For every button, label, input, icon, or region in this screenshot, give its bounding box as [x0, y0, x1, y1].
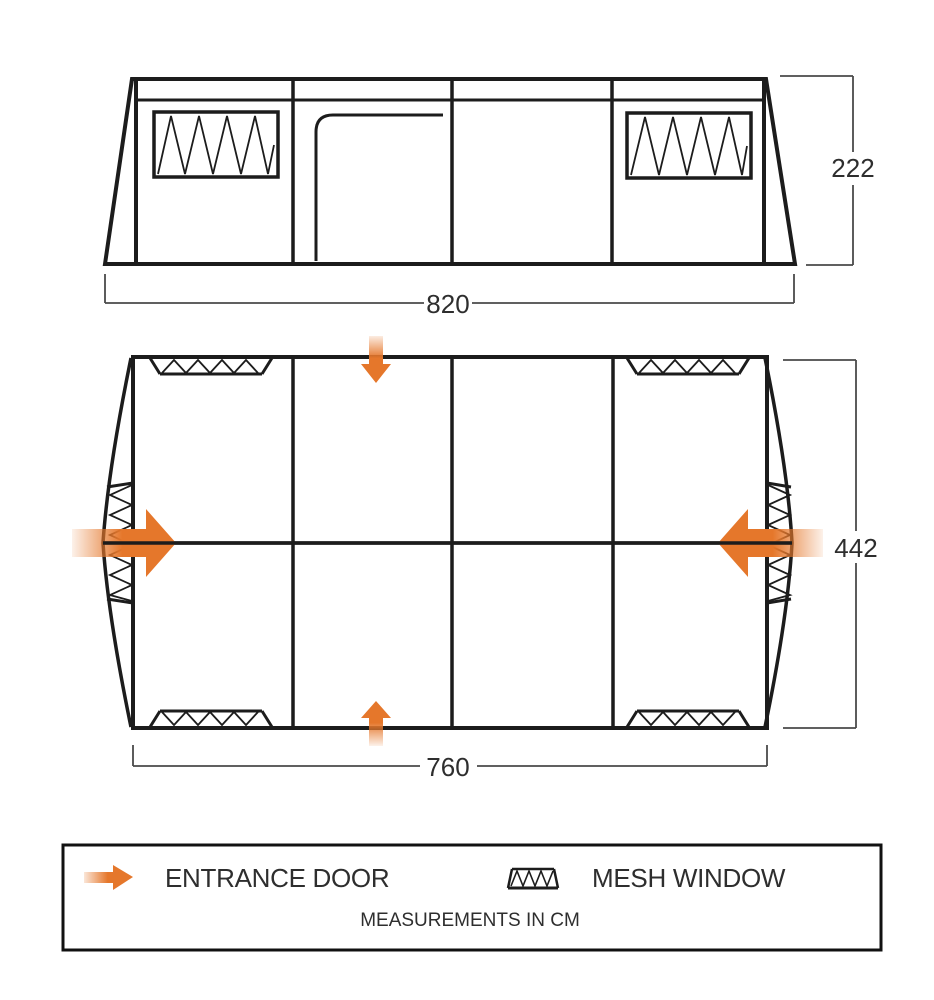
side-view-outline — [105, 79, 795, 264]
plan-width-dimension-label: 760 — [426, 752, 469, 782]
legend-mesh-window-label: MESH WINDOW — [592, 863, 786, 893]
diagram-canvas: 222 820 — [0, 0, 934, 1000]
side-width-dimension-label: 820 — [426, 289, 469, 319]
tent-dimensions-diagram: 222 820 — [0, 0, 934, 1000]
legend-entrance-door-label: ENTRANCE DOOR — [165, 863, 389, 893]
legend: ENTRANCE DOOR MESH WINDOW MEASUREMENTS I… — [63, 845, 881, 950]
side-height-dimension-label: 222 — [831, 153, 874, 183]
legend-measurements-note: MEASUREMENTS IN CM — [360, 910, 580, 931]
side-view — [105, 79, 795, 264]
plan-depth-dimension-label: 442 — [834, 533, 877, 563]
legend-box — [63, 845, 881, 950]
